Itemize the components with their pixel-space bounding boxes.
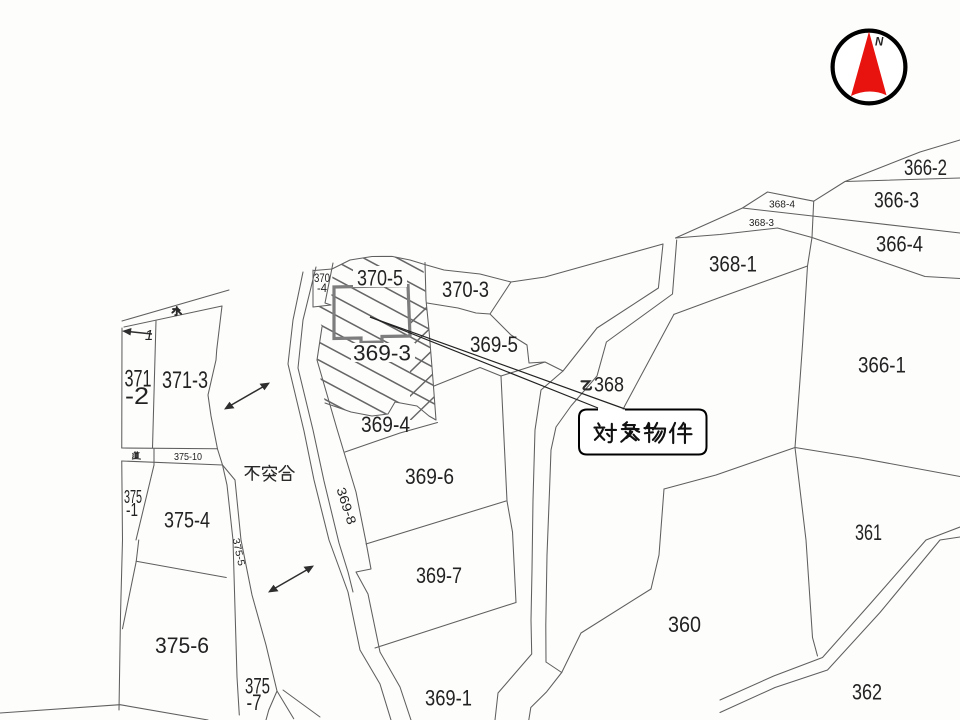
svg-text:368-3: 368-3: [749, 217, 774, 229]
svg-text:360: 360: [668, 612, 701, 637]
svg-text:362: 362: [852, 680, 882, 705]
svg-text:368-1: 368-1: [709, 252, 757, 277]
svg-text:-1: -1: [126, 500, 138, 520]
svg-text:366-4: 366-4: [876, 232, 923, 257]
svg-text:375-4: 375-4: [164, 507, 210, 532]
svg-text:369-8: 369-8: [333, 485, 359, 526]
svg-text:370-5: 370-5: [357, 265, 403, 290]
svg-text:361: 361: [855, 520, 882, 545]
svg-text:369-6: 369-6: [405, 464, 454, 489]
svg-text:369-3: 369-3: [353, 340, 411, 365]
svg-text:368: 368: [594, 374, 624, 397]
svg-text:1: 1: [145, 327, 153, 344]
svg-text:370-3: 370-3: [442, 277, 489, 302]
svg-text:375-6: 375-6: [155, 633, 209, 658]
svg-text:371-3: 371-3: [162, 367, 208, 394]
svg-text:366-3: 366-3: [874, 188, 919, 213]
svg-text:369-7: 369-7: [416, 563, 462, 588]
svg-text:369-5: 369-5: [470, 332, 518, 357]
svg-text:366-2: 366-2: [904, 155, 947, 180]
svg-text:375-5: 375-5: [230, 537, 247, 567]
svg-text:375-10: 375-10: [174, 451, 202, 463]
svg-text:366-1: 366-1: [858, 353, 906, 378]
svg-text:368-4: 368-4: [769, 199, 795, 211]
svg-text:-2: -2: [125, 383, 149, 410]
svg-text:369-1: 369-1: [425, 685, 472, 710]
svg-text:369-4: 369-4: [361, 412, 410, 437]
svg-text:-7: -7: [246, 690, 261, 715]
svg-text:-4: -4: [317, 281, 327, 295]
